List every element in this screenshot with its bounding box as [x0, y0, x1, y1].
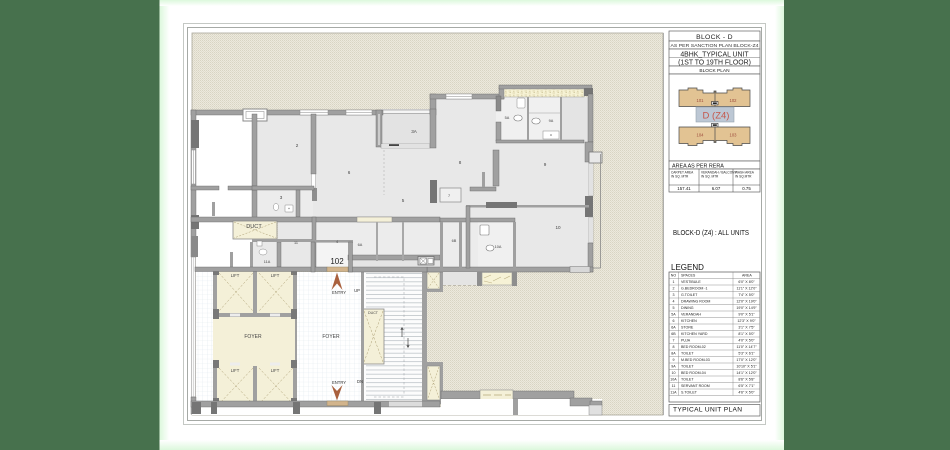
svg-text:12'3" X 9'0": 12'3" X 9'0": [737, 319, 756, 323]
svg-text:3: 3: [673, 293, 675, 297]
svg-text:4BHK_TYPICAL UNIT: 4BHK_TYPICAL UNIT: [680, 52, 749, 59]
svg-text:7'4" X 5'0": 7'4" X 5'0": [738, 293, 755, 297]
svg-text:UP: UP: [354, 288, 360, 293]
svg-text:10'10" X 5'1": 10'10" X 5'1": [736, 365, 757, 369]
svg-text:19'0" X 14'9": 19'0" X 14'9": [736, 306, 757, 310]
svg-text:10: 10: [672, 371, 676, 375]
svg-text:3'1" X 7'5": 3'1" X 7'5": [738, 326, 755, 330]
svg-text:101: 101: [697, 98, 705, 103]
svg-text:0.75: 0.75: [742, 186, 751, 191]
svg-text:M.BED ROOM-03: M.BED ROOM-03: [681, 358, 710, 362]
svg-text:TYPICAL UNIT PLAN: TYPICAL UNIT PLAN: [673, 407, 742, 414]
svg-text:7: 7: [448, 194, 450, 198]
svg-text:PUJA: PUJA: [681, 339, 691, 343]
svg-text:DN: DN: [357, 379, 363, 384]
svg-text:11A: 11A: [264, 260, 271, 264]
svg-text:(1ST TO 19TH FLOOR): (1ST TO 19TH FLOOR): [678, 59, 751, 66]
svg-text:6'0" X 8'0": 6'0" X 8'0": [738, 280, 755, 284]
svg-text:7: 7: [673, 339, 675, 343]
svg-text:103: 103: [730, 133, 738, 138]
svg-text:11: 11: [672, 384, 676, 388]
svg-text:10A: 10A: [670, 378, 677, 382]
svg-text:17'0" X 12'0": 17'0" X 12'0": [736, 358, 757, 362]
svg-text:6B: 6B: [671, 332, 676, 336]
svg-text:DUCT: DUCT: [246, 224, 262, 230]
svg-text:6A: 6A: [671, 326, 676, 330]
svg-text:LEGEND: LEGEND: [671, 263, 704, 272]
svg-text:1: 1: [673, 280, 675, 284]
svg-text:4: 4: [336, 240, 338, 244]
svg-text:5: 5: [673, 306, 675, 310]
svg-text:TOILET: TOILET: [681, 352, 694, 356]
svg-text:G.BEDROOM -1: G.BEDROOM -1: [681, 287, 708, 291]
svg-text:5: 5: [402, 198, 405, 203]
svg-text:14'1" X 12'0": 14'1" X 12'0": [736, 371, 757, 375]
svg-text:BLOCK PLAN: BLOCK PLAN: [699, 68, 730, 74]
svg-text:6A: 6A: [358, 243, 363, 247]
svg-text:157.41: 157.41: [677, 186, 691, 191]
svg-text:BLOCK-D (Z4) : ALL UNITS: BLOCK-D (Z4) : ALL UNITS: [673, 228, 749, 237]
svg-text:5A: 5A: [671, 313, 676, 317]
svg-text:IN SQ. MTR: IN SQ. MTR: [701, 175, 719, 179]
svg-text:KITCHEN YARD: KITCHEN YARD: [681, 332, 708, 336]
svg-text:AS PER SANCTION PLAN BLOCK-Z4: AS PER SANCTION PLAN BLOCK-Z4: [671, 43, 759, 48]
svg-text:102: 102: [730, 98, 738, 103]
svg-text:S.TOILET: S.TOILET: [681, 391, 698, 395]
svg-text:DINING: DINING: [681, 306, 694, 310]
svg-text:6B: 6B: [452, 239, 457, 243]
svg-text:4'6" X 5'0": 4'6" X 5'0": [738, 391, 755, 395]
svg-text:102: 102: [330, 257, 344, 266]
svg-text:5'3" X 6'1": 5'3" X 6'1": [738, 352, 755, 356]
svg-text:11: 11: [294, 241, 298, 245]
svg-text:IN SQ. MTR: IN SQ. MTR: [671, 175, 689, 179]
svg-text:9: 9: [544, 162, 547, 167]
svg-text:8'1" X 5'0": 8'1" X 5'0": [738, 332, 755, 336]
svg-text:FOYER: FOYER: [244, 334, 262, 340]
svg-text:6: 6: [348, 170, 351, 175]
svg-text:3A: 3A: [411, 129, 418, 134]
svg-text:6.07: 6.07: [712, 186, 721, 191]
svg-text:9A: 9A: [549, 119, 554, 123]
svg-text:VERANDAH: VERANDAH: [681, 313, 701, 317]
svg-text:4'0" X 5'0": 4'0" X 5'0": [738, 339, 755, 343]
svg-text:11'0" X 14'7": 11'0" X 14'7": [736, 345, 757, 349]
svg-text:11A: 11A: [670, 391, 677, 395]
svg-text:ENTRY: ENTRY: [332, 290, 346, 295]
svg-text:8'6" X 5'8": 8'6" X 5'8": [738, 378, 755, 382]
svg-text:BED ROOM-04: BED ROOM-04: [681, 371, 706, 375]
svg-text:AREA AS PER RERA: AREA AS PER RERA: [672, 163, 724, 169]
svg-text:ENTRY: ENTRY: [332, 380, 346, 385]
svg-text:10A: 10A: [495, 245, 502, 249]
svg-text:LIFT: LIFT: [271, 368, 280, 373]
svg-text:12'0" X 19'0": 12'0" X 19'0": [736, 300, 757, 304]
svg-text:NO: NO: [671, 274, 677, 278]
svg-text:DUCT: DUCT: [368, 311, 379, 315]
svg-text:10: 10: [555, 225, 561, 230]
svg-text:BLOCK - D: BLOCK - D: [696, 34, 733, 41]
svg-text:AREA: AREA: [742, 274, 752, 278]
svg-text:4: 4: [673, 300, 675, 304]
svg-text:KITCHEN: KITCHEN: [681, 319, 697, 323]
svg-text:LIFT: LIFT: [271, 273, 280, 278]
svg-text:DRAWING ROOM: DRAWING ROOM: [681, 300, 710, 304]
svg-text:2: 2: [296, 143, 299, 148]
svg-text:5A: 5A: [505, 116, 510, 120]
svg-text:6: 6: [673, 319, 675, 323]
svg-text:11'1" X 12'0": 11'1" X 12'0": [736, 287, 757, 291]
svg-text:BED ROOM-02: BED ROOM-02: [681, 345, 706, 349]
svg-text:IN SQ.MTR: IN SQ.MTR: [735, 175, 752, 179]
svg-text:2: 2: [673, 287, 675, 291]
svg-text:VESTIBULE: VESTIBULE: [681, 280, 701, 284]
svg-text:3: 3: [280, 195, 283, 200]
svg-text:LIFT: LIFT: [231, 368, 240, 373]
svg-text:6'5" X 7'1": 6'5" X 7'1": [738, 384, 755, 388]
svg-text:8: 8: [459, 160, 462, 165]
svg-text:SPACES: SPACES: [681, 274, 696, 278]
svg-text:TOILET: TOILET: [681, 365, 694, 369]
svg-text:8A: 8A: [671, 352, 676, 356]
svg-text:STORE: STORE: [681, 326, 694, 330]
svg-text:G.TOILET: G.TOILET: [681, 293, 698, 297]
svg-text:8: 8: [673, 345, 675, 349]
svg-text:104: 104: [697, 133, 705, 138]
svg-text:TOILET: TOILET: [681, 378, 694, 382]
svg-text:FOYER: FOYER: [322, 334, 340, 340]
svg-text:LIFT: LIFT: [231, 273, 240, 278]
svg-text:SERVANT ROOM: SERVANT ROOM: [681, 384, 710, 388]
svg-text:9A: 9A: [671, 365, 676, 369]
svg-text:D (Z4): D (Z4): [703, 111, 730, 122]
svg-text:9: 9: [673, 358, 675, 362]
svg-text:9'0" X 5'1": 9'0" X 5'1": [738, 313, 755, 317]
